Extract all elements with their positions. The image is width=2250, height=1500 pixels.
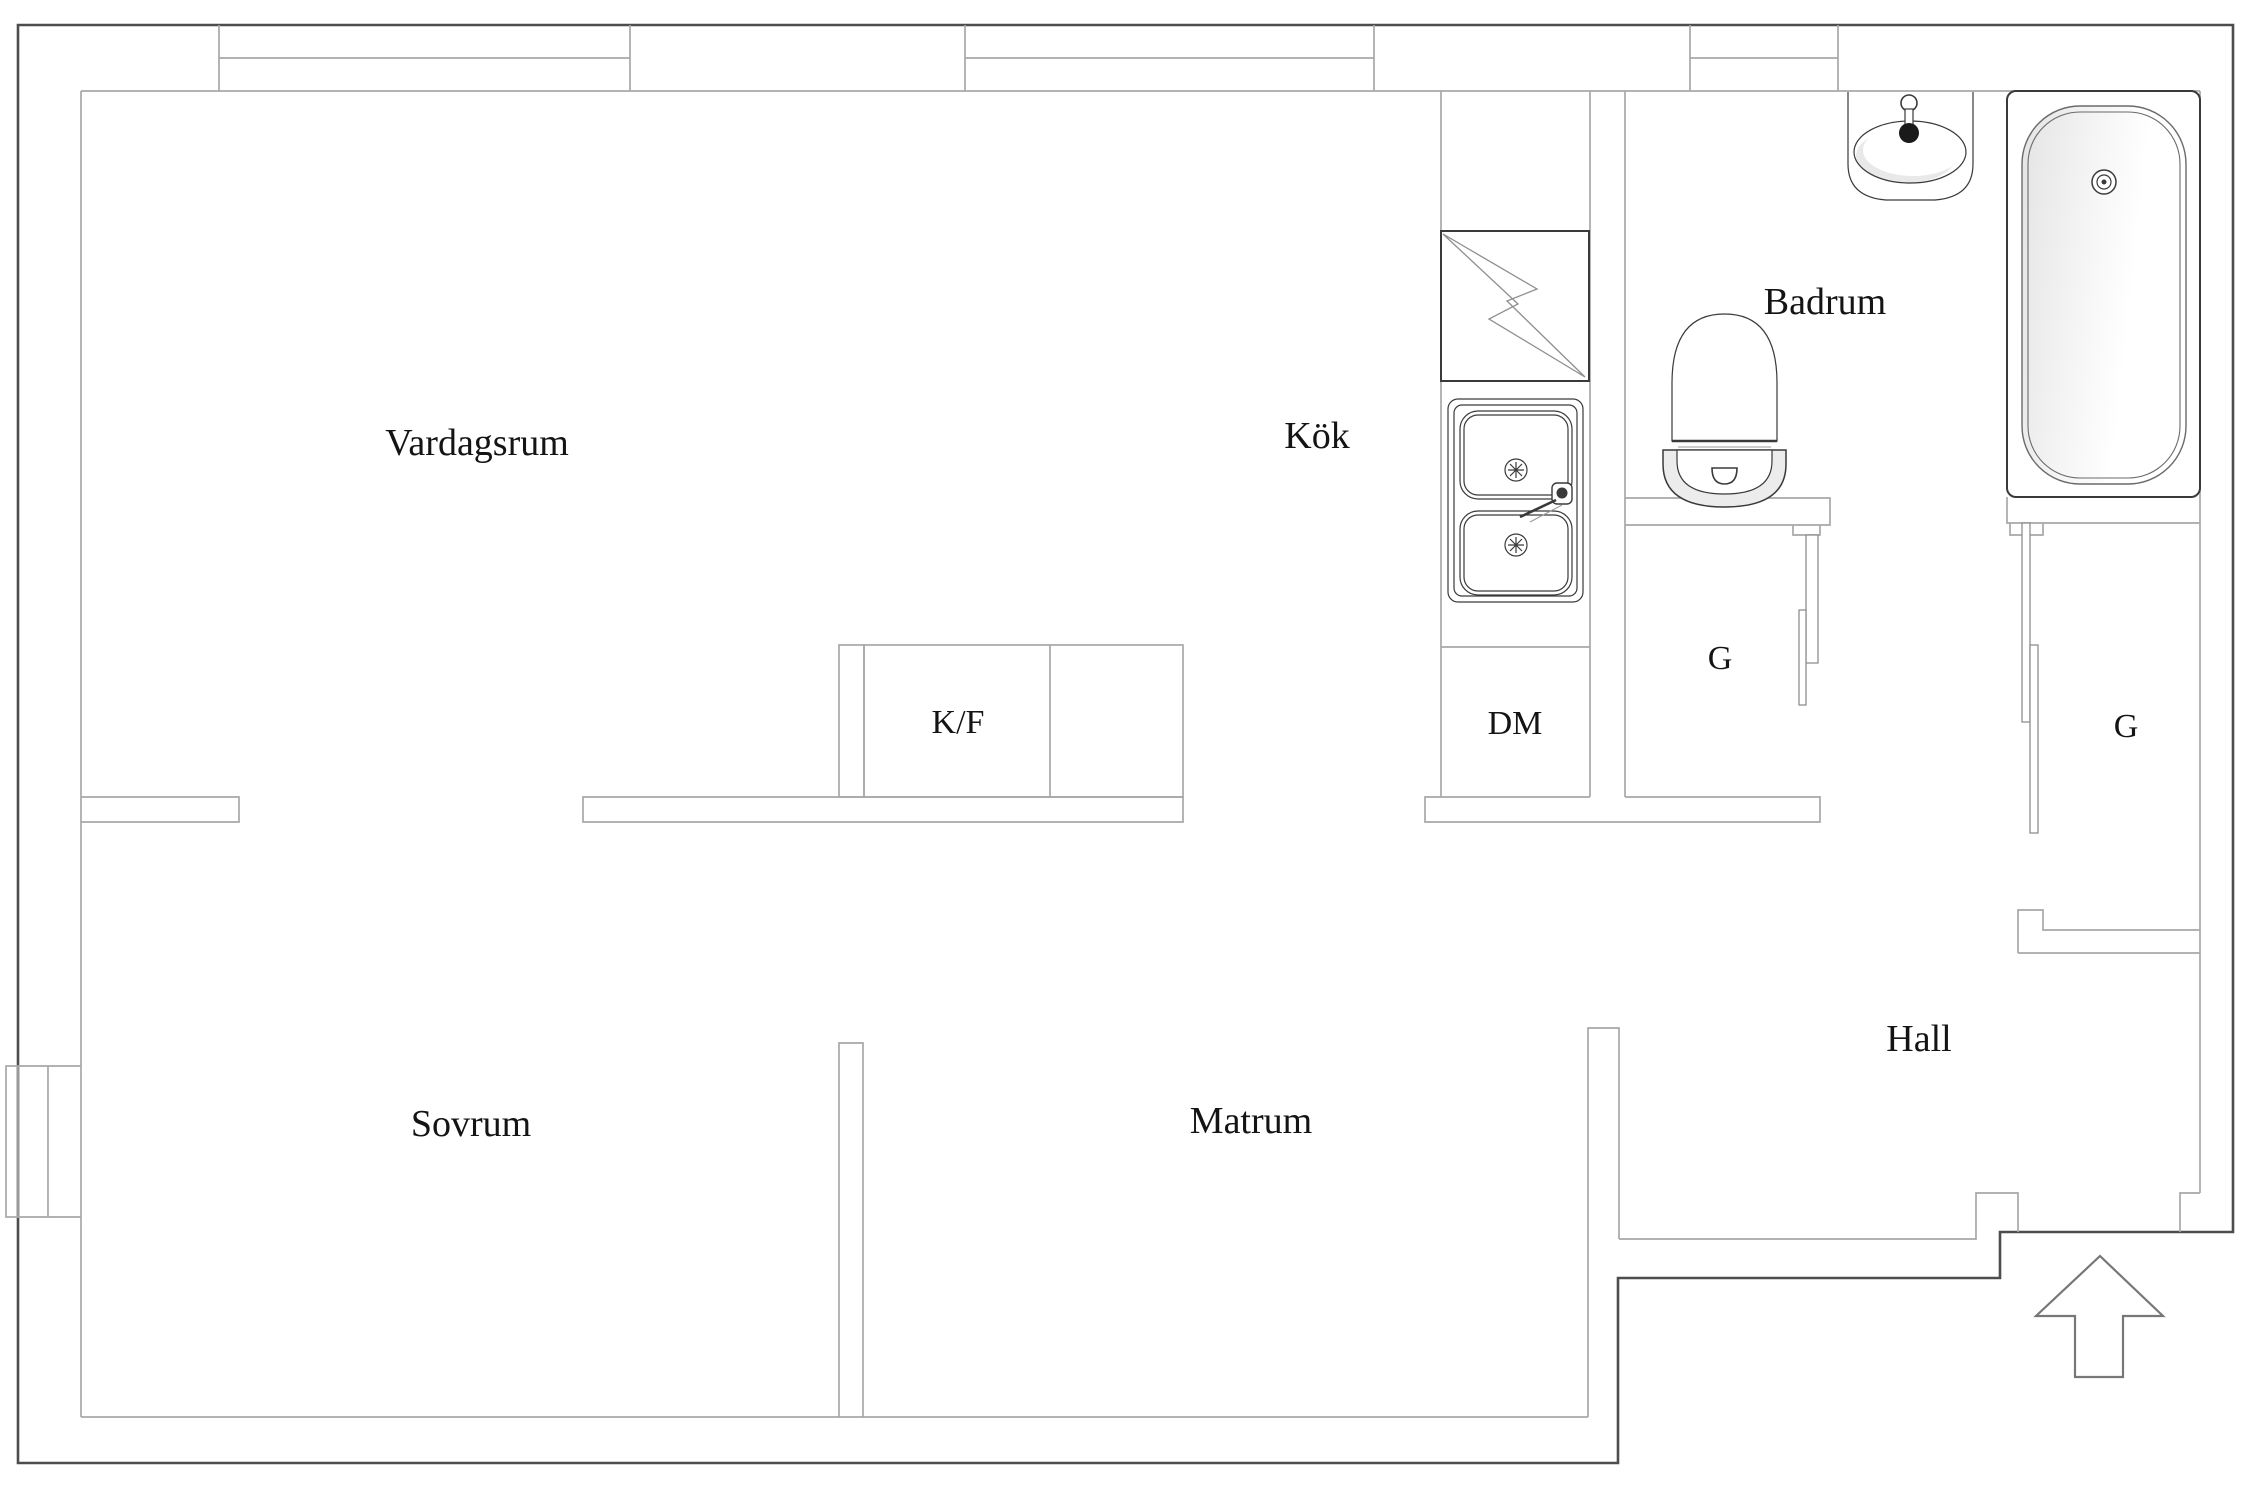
room-label-sovrum: Sovrum	[411, 1103, 531, 1145]
wardrobe-doors	[1799, 523, 2038, 833]
room-label-vardagsrum: Vardagsrum	[385, 422, 569, 464]
tub-drain-icon	[2092, 170, 2116, 194]
fixture-label-kf: K/F	[932, 704, 985, 741]
fridge-freezer-box: K/F	[839, 645, 1183, 797]
window-top-1	[219, 25, 630, 91]
washbasin	[1848, 92, 1973, 200]
room-label-badrum: Badrum	[1764, 281, 1886, 323]
room-labels: Vardagsrum Kök Badrum Sovrum Matrum Hall…	[385, 281, 2138, 1145]
window-top-2	[965, 25, 1374, 91]
room-label-kok: Kök	[1284, 415, 1349, 457]
floor-plan-canvas: DM K/F	[0, 0, 2250, 1500]
arrow-up-icon	[2036, 1256, 2163, 1377]
window-left	[6, 1066, 81, 1217]
room-label-hall: Hall	[1886, 1018, 1951, 1060]
fixture-label-dm: DM	[1488, 705, 1543, 742]
tap-icon	[1899, 95, 1919, 143]
outer-wall	[18, 25, 2233, 1463]
wardrobe-label-left: G	[1708, 640, 1733, 677]
room-label-matrum: Matrum	[1190, 1100, 1312, 1142]
wardrobe-left-door-2	[1799, 610, 1806, 705]
drain-icon	[1505, 459, 1527, 556]
windows	[6, 25, 1838, 1217]
wardrobe-label-right: G	[2114, 708, 2139, 745]
toilet	[1663, 314, 1786, 507]
entrance-arrow	[2036, 1256, 2163, 1377]
faucet-icon	[1520, 483, 1572, 522]
wardrobe-right-door-2	[2030, 645, 2038, 833]
wardrobe-left-door	[1806, 535, 1818, 663]
floor-plan-page: DM K/F	[0, 0, 2250, 1500]
stove	[1441, 231, 1589, 381]
dishwasher-box: DM	[1441, 647, 1590, 742]
bathtub	[2007, 91, 2200, 497]
wardrobe-right-door	[2022, 523, 2030, 722]
window-top-3	[1690, 25, 1838, 91]
kitchen-sink	[1448, 399, 1583, 602]
